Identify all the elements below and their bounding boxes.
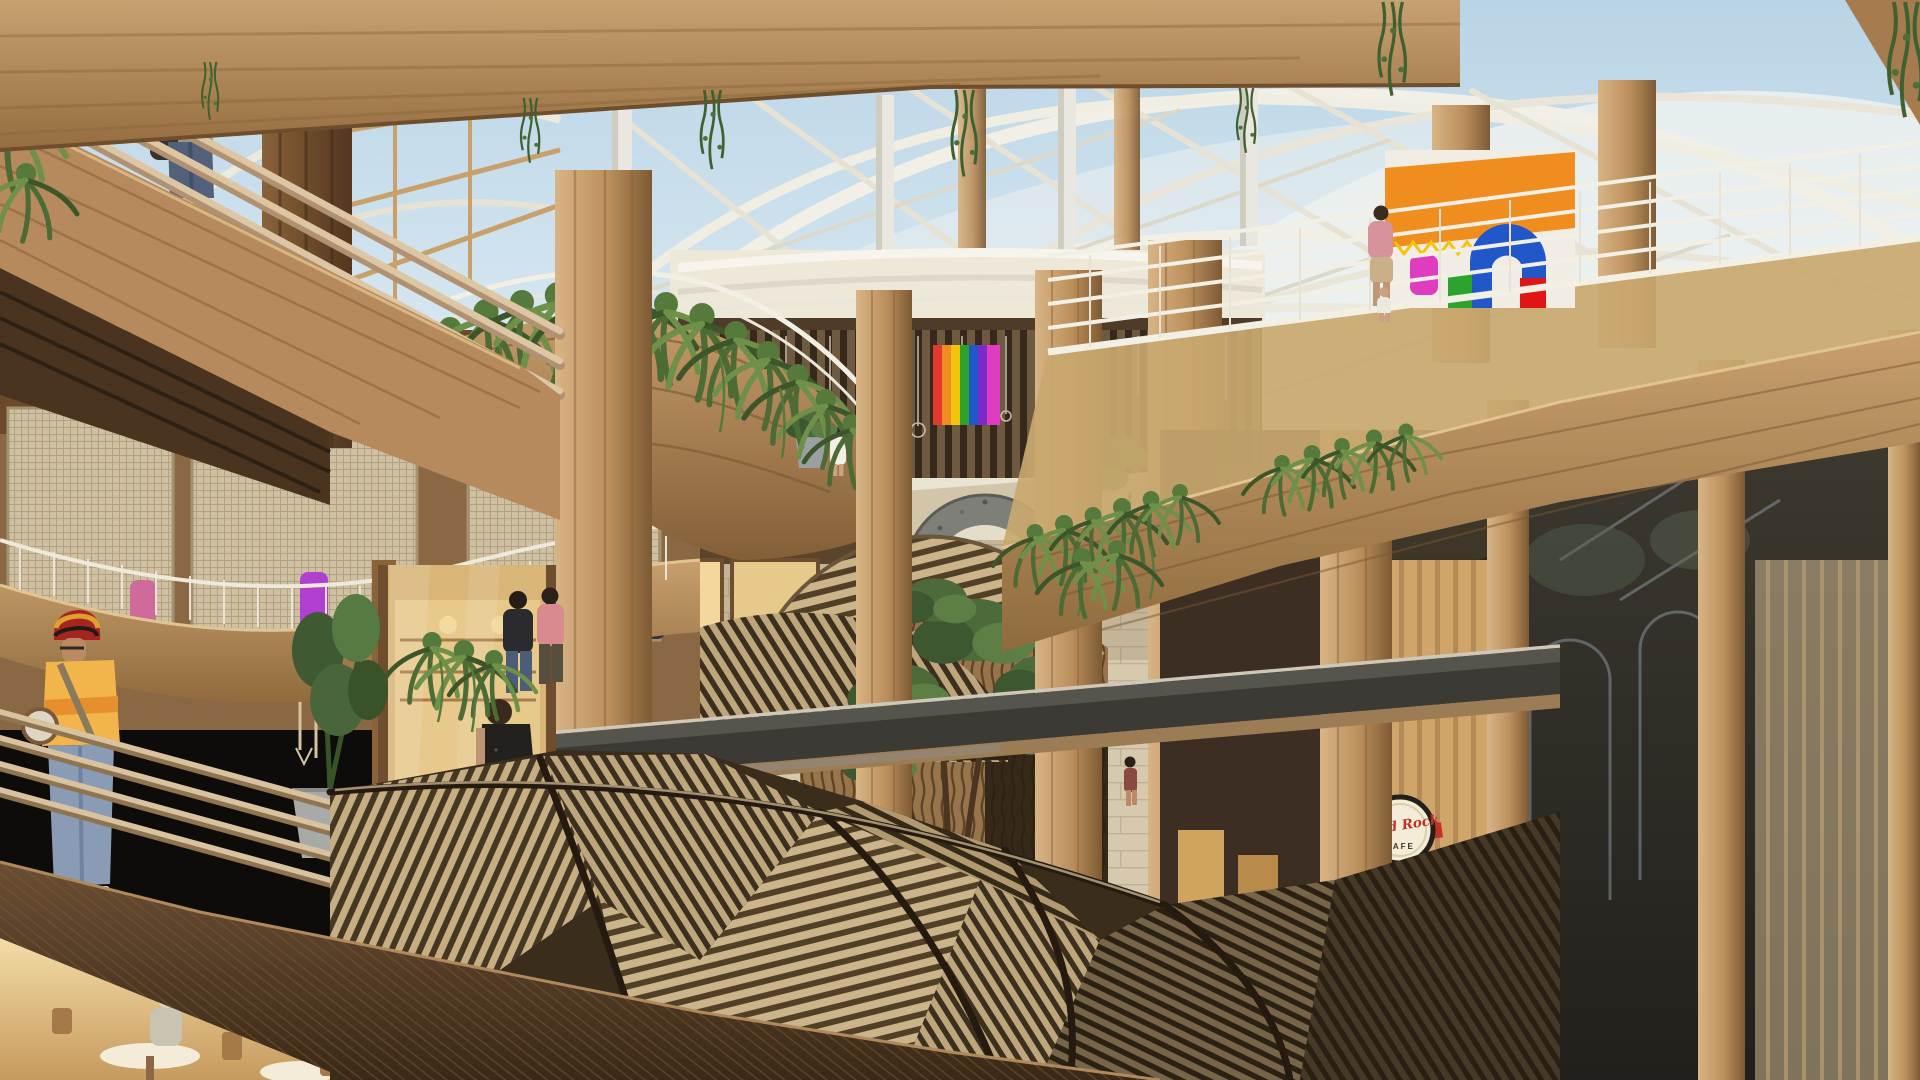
rainbow-stripes [942, 345, 1000, 425]
person-toddler [1377, 287, 1391, 322]
atrium-rendering: Timber shopping mall atrium rendering [0, 0, 1920, 1080]
rendering-canvas: Timber shopping mall atrium rendering [0, 0, 1920, 1080]
